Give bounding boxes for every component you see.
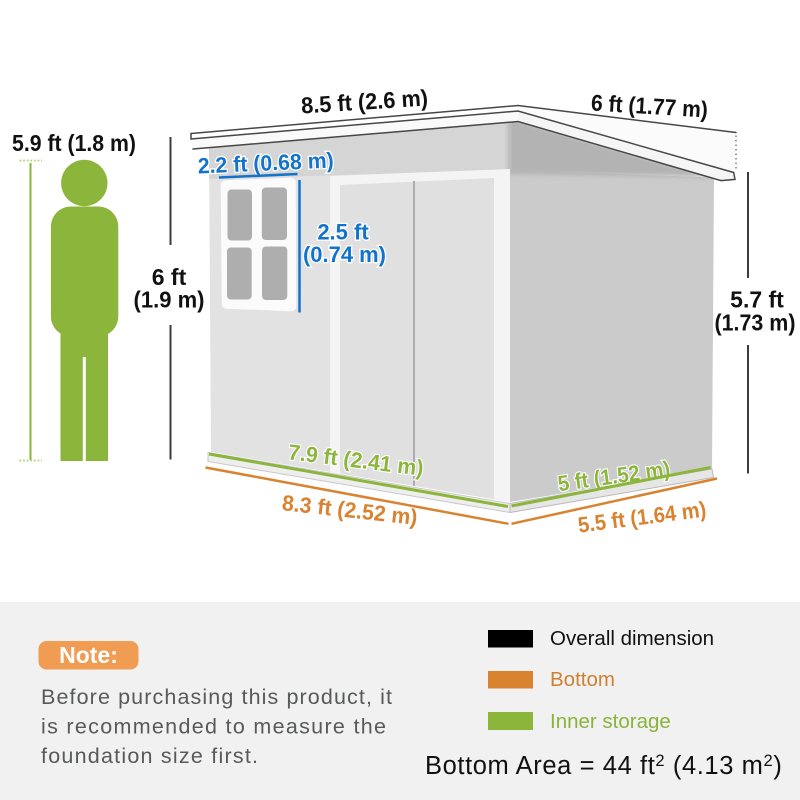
- svg-text:(0.74 m): (0.74 m): [303, 242, 386, 267]
- svg-text:5.9 ft (1.8 m): 5.9 ft (1.8 m): [12, 130, 136, 156]
- svg-text:(1.9 m): (1.9 m): [134, 287, 205, 313]
- svg-text:Before purchasing this product: Before purchasing this product, it: [41, 685, 392, 709]
- svg-text:(1.73 m): (1.73 m): [715, 310, 796, 336]
- svg-text:Bottom Area = 44 ft2 (4.13 m2): Bottom Area = 44 ft2 (4.13 m2): [425, 752, 782, 780]
- svg-text:2.5 ft: 2.5 ft: [317, 220, 369, 245]
- svg-text:is recommended to measure the: is recommended to measure the: [41, 715, 386, 739]
- svg-text:Overall dimension: Overall dimension: [550, 627, 714, 650]
- svg-text:Inner storage: Inner storage: [550, 710, 671, 733]
- svg-text:Note:: Note:: [59, 642, 118, 668]
- svg-text:Bottom: Bottom: [550, 668, 615, 691]
